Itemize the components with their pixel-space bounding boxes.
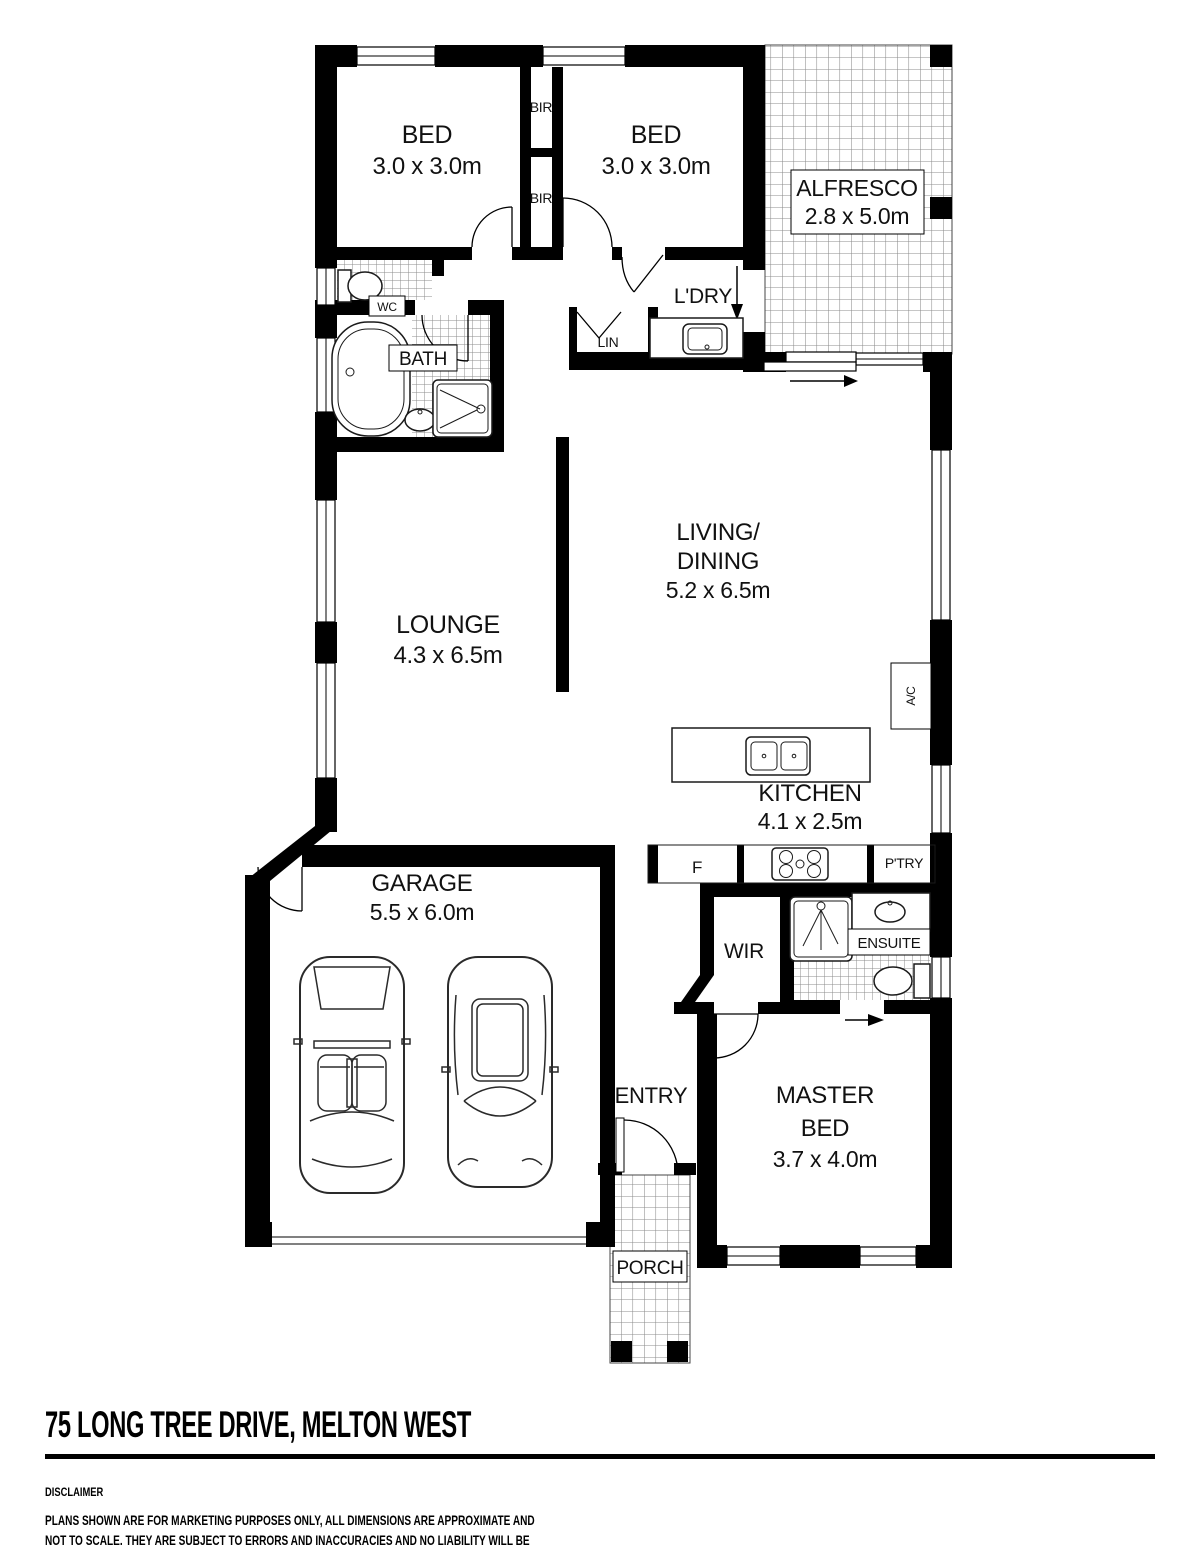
label-fridge: F — [692, 858, 702, 877]
room-label-entry: ENTRY — [615, 1083, 688, 1108]
room-dims-lounge: 4.3 x 6.5m — [393, 642, 502, 669]
room-dims-garage: 5.5 x 6.0m — [370, 899, 474, 925]
room-label-alfresco: ALFRESCO — [796, 175, 918, 201]
window — [932, 765, 950, 833]
room-label-ensuite: ENSUITE — [858, 935, 921, 952]
sink-icon — [405, 409, 435, 431]
bathtub-icon — [332, 322, 410, 436]
door-arc — [714, 1014, 758, 1058]
window — [932, 450, 950, 620]
vanity-sink-icon — [852, 893, 930, 931]
cooktop-icon — [772, 848, 828, 880]
door-arc — [563, 198, 612, 247]
window — [317, 663, 335, 778]
room-label-living-1: LIVING/ — [676, 519, 760, 546]
room-label-ldry: L'DRY — [674, 285, 732, 308]
door-arc — [622, 255, 663, 292]
garage-door — [272, 1237, 586, 1244]
room-label-wc: WC — [377, 300, 397, 314]
room-label-wir: WIR — [724, 940, 764, 963]
car-icon — [294, 957, 410, 1193]
label-pantry: P'TRY — [885, 855, 924, 871]
shower-icon — [433, 380, 492, 437]
room-label-bed1: BED — [402, 121, 453, 149]
window — [543, 47, 625, 65]
room-label-bed2: BED — [631, 121, 682, 149]
footer: 75 LONG TREE DRIVE, MELTON WEST DISCLAIM… — [0, 1390, 1200, 1553]
room-dims-kitchen: 4.1 x 2.5m — [758, 808, 862, 834]
room-label-garage: GARAGE — [372, 870, 473, 897]
label-ac: A/C — [904, 686, 918, 706]
room-dims-alfresco: 2.8 x 5.0m — [805, 203, 909, 229]
room-label-porch: PORCH — [616, 1258, 683, 1279]
window — [856, 353, 923, 365]
room-label-lounge: LOUNGE — [396, 611, 500, 639]
exit-arrow — [731, 266, 743, 320]
room-label-bath: BATH — [399, 349, 447, 370]
laundry-trough-icon — [650, 318, 743, 358]
room-dims-bed1: 3.0 x 3.0m — [372, 153, 481, 180]
floor-plan-page: BED 3.0 x 3.0m BED 3.0 x 3.0m BIR BIR AL… — [0, 0, 1200, 1553]
label-bir-lower: BIR — [530, 190, 553, 206]
kitchen-island — [672, 728, 870, 782]
shower-icon — [790, 897, 852, 961]
room-dims-master: 3.7 x 4.0m — [773, 1146, 877, 1172]
exit-arrow — [845, 1014, 884, 1026]
disclaimer-heading: DISCLAIMER — [45, 1485, 946, 1499]
door-arc — [472, 207, 512, 247]
address-title: 75 LONG TREE DRIVE, MELTON WEST — [45, 1404, 784, 1446]
room-label-kitchen: KITCHEN — [758, 780, 861, 807]
window — [727, 1247, 780, 1265]
window — [317, 500, 335, 622]
room-dims-bed2: 3.0 x 3.0m — [601, 153, 710, 180]
room-label-master-2: BED — [801, 1115, 849, 1142]
room-label-lin: LIN — [598, 334, 619, 350]
window — [932, 957, 950, 998]
window — [317, 268, 335, 305]
car-icon — [442, 957, 558, 1187]
title-underline — [45, 1454, 1155, 1459]
floor-plan-canvas: BED 3.0 x 3.0m BED 3.0 x 3.0m BIR BIR AL… — [0, 0, 1200, 1385]
disclaimer-text: PLANS SHOWN ARE FOR MARKETING PURPOSES O… — [45, 1511, 877, 1553]
toilet-icon — [874, 964, 930, 998]
window — [860, 1247, 916, 1265]
window — [357, 47, 435, 65]
front-door — [616, 1118, 678, 1174]
room-label-master-1: MASTER — [776, 1082, 874, 1109]
room-dims-living: 5.2 x 6.5m — [666, 577, 770, 603]
room-label-living-2: DINING — [677, 548, 759, 575]
label-bir-upper: BIR — [530, 99, 553, 115]
